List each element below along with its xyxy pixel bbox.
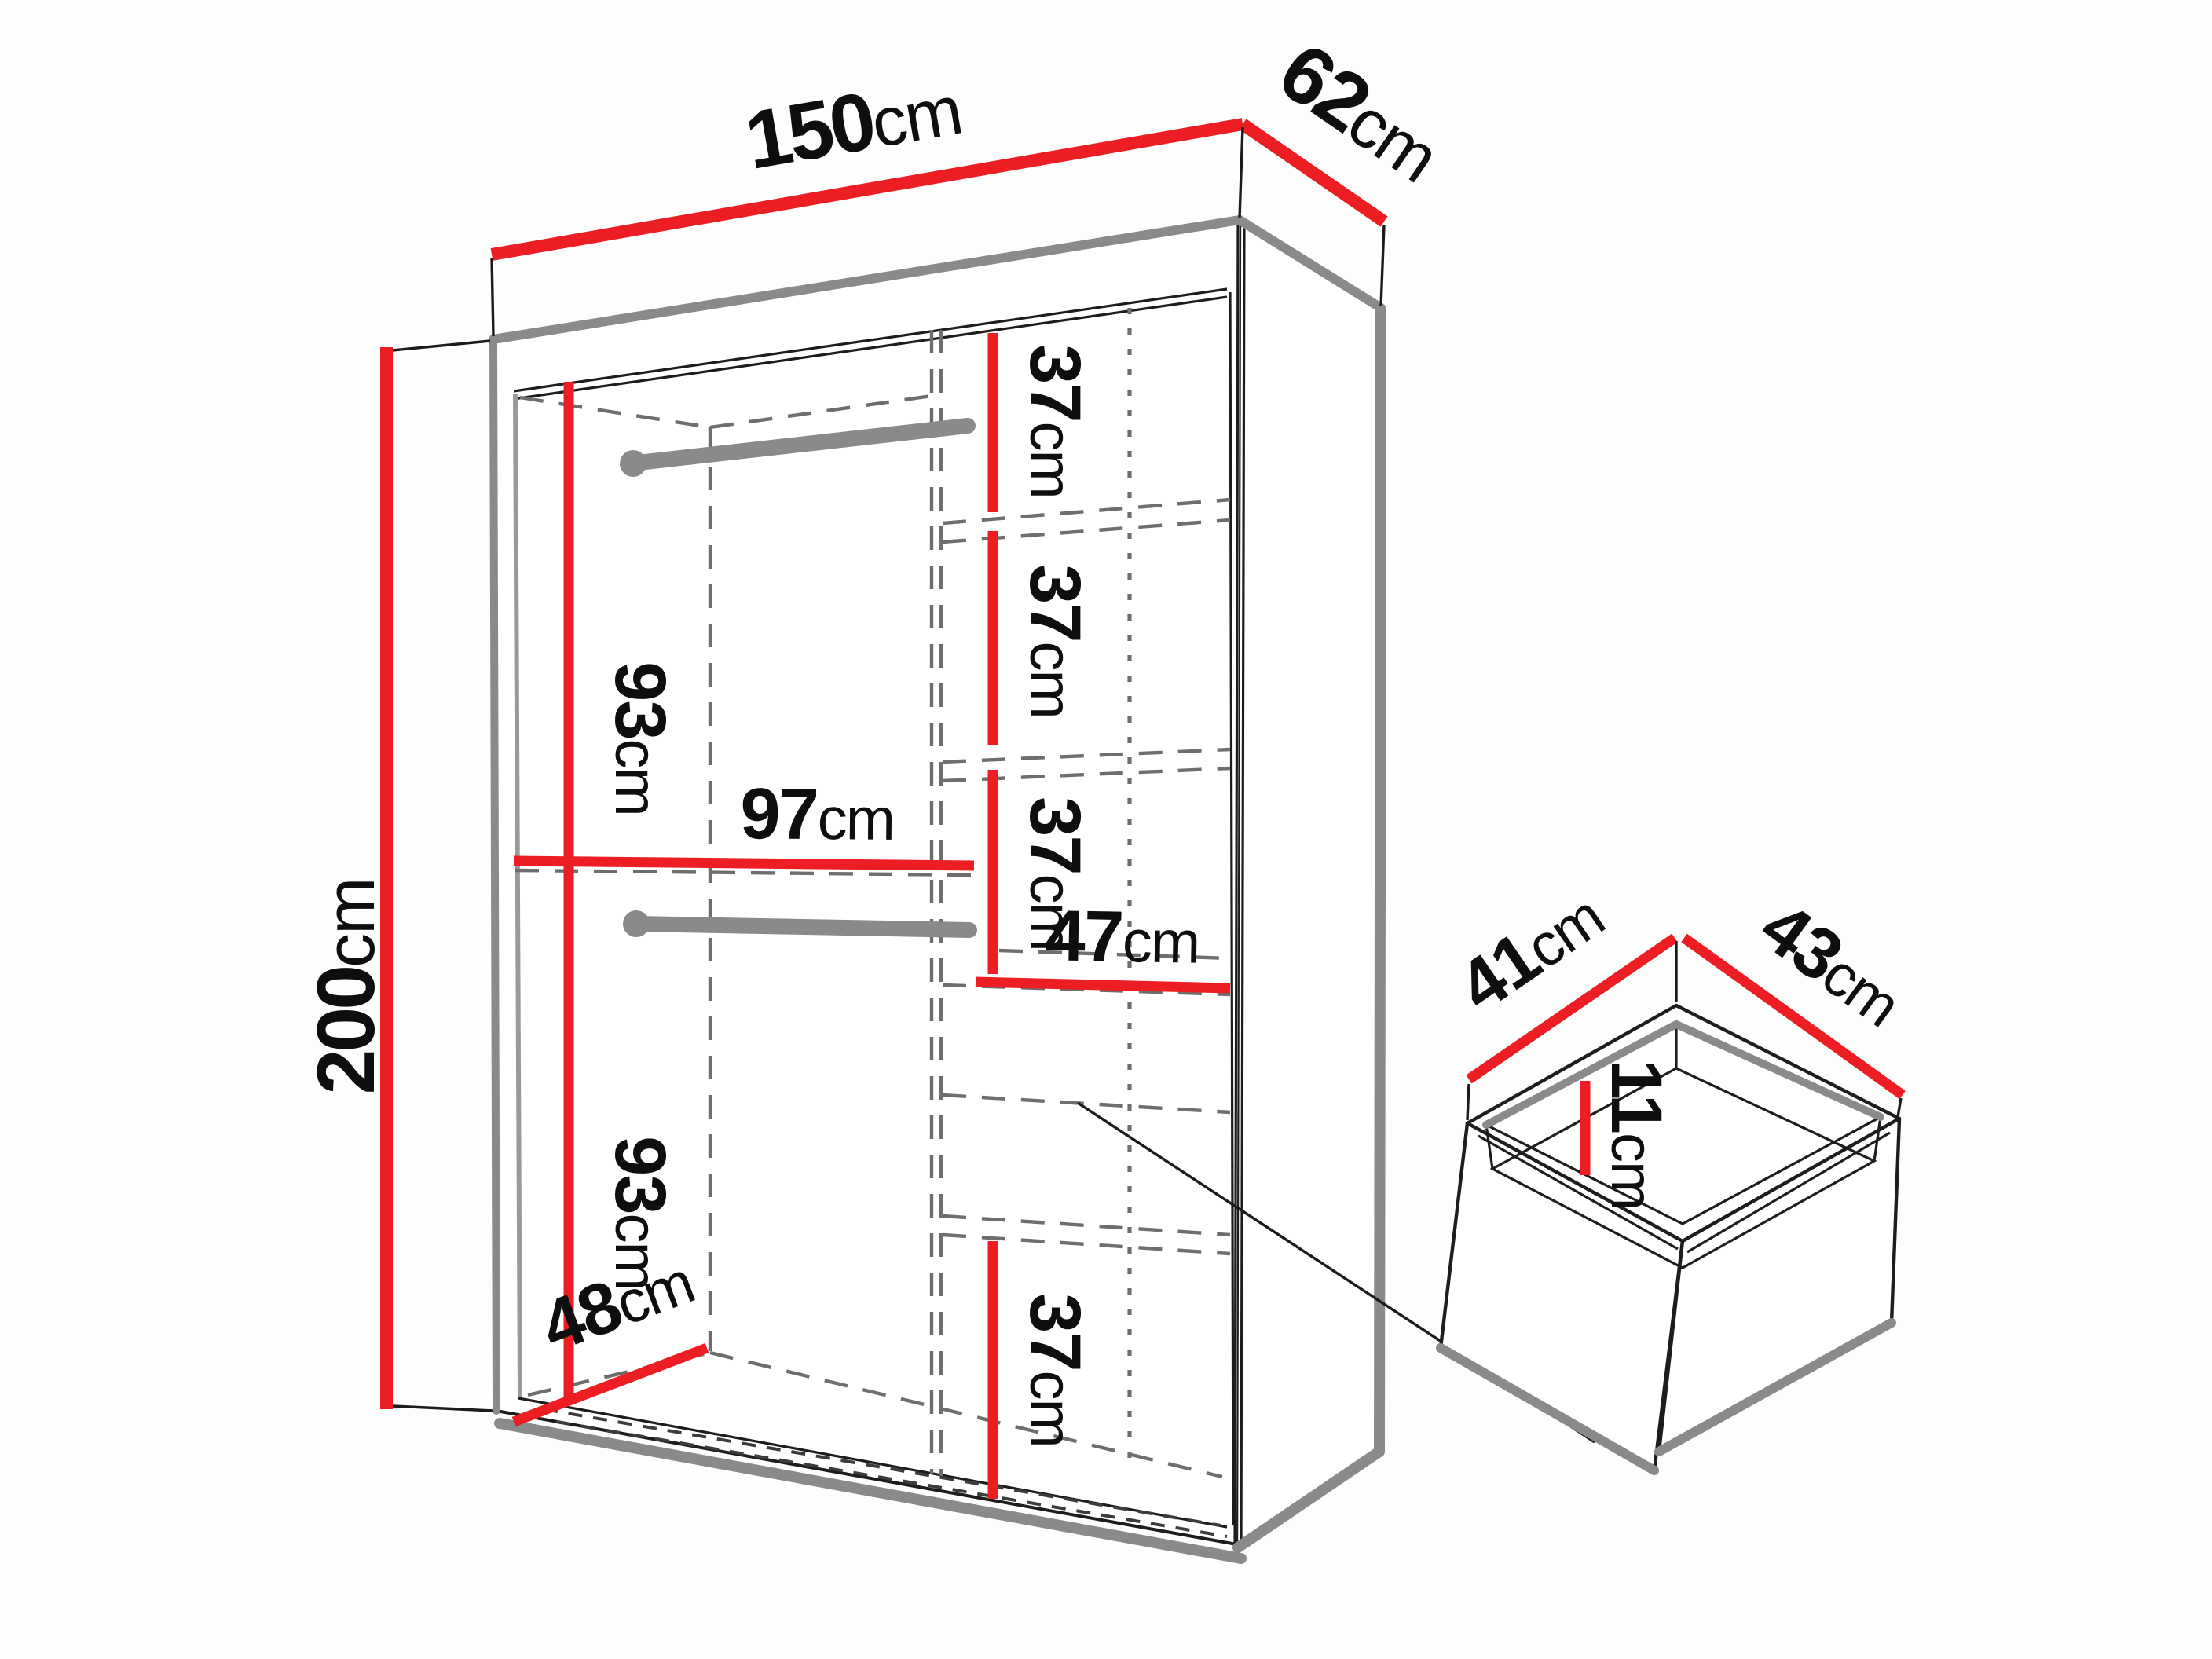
ext-depth-right	[1381, 225, 1384, 306]
label-height-200: 200cm	[301, 879, 392, 1095]
label-shelf-37-2: 37cm	[1015, 564, 1095, 718]
label-shelf-37-1: 37cm	[1015, 344, 1095, 498]
label-shelf-37-4: 37cm	[1015, 1293, 1095, 1447]
left-front-edge	[493, 341, 496, 1411]
dim-line-shelf-width-47	[976, 982, 1230, 988]
wardrobe-dimension-diagram: 150cm 62cm 200cm 93cm 93cm 97cm 37cm 37c…	[0, 0, 2212, 1659]
ext-width-right	[1240, 127, 1243, 218]
label-hanging-width-97: 97cm	[740, 774, 895, 855]
label-drawer-width-43: 43cm	[1746, 886, 1917, 1042]
diagram-stage: 150cm 62cm 200cm 93cm 93cm 97cm 37cm 37c…	[0, 0, 2212, 1659]
ext-width-left	[492, 258, 493, 336]
label-width-150: 150cm	[739, 60, 968, 187]
label-drawer-depth-41: 41cm	[1445, 874, 1617, 1027]
ext-height-top	[393, 341, 490, 350]
lower-hanging-rod	[635, 924, 969, 930]
ext-drawer-left	[1467, 1084, 1469, 1120]
label-upper-hanging-93: 93cm	[600, 661, 680, 815]
label-drawer-height-11: 11cm	[1596, 1060, 1676, 1210]
wardrobe-right-side-face	[1236, 220, 1381, 1546]
ext-drawer-right	[1898, 1098, 1901, 1117]
lower-rod-end-cap	[623, 910, 650, 937]
label-depth-62: 62cm	[1263, 26, 1458, 200]
back-right-edge	[1379, 309, 1381, 1450]
wardrobe-body	[493, 220, 1381, 1558]
upper-rod-end-cap	[620, 450, 646, 477]
ext-height-bottom	[393, 1406, 493, 1411]
dim-line-hanging-width-97	[514, 861, 974, 866]
